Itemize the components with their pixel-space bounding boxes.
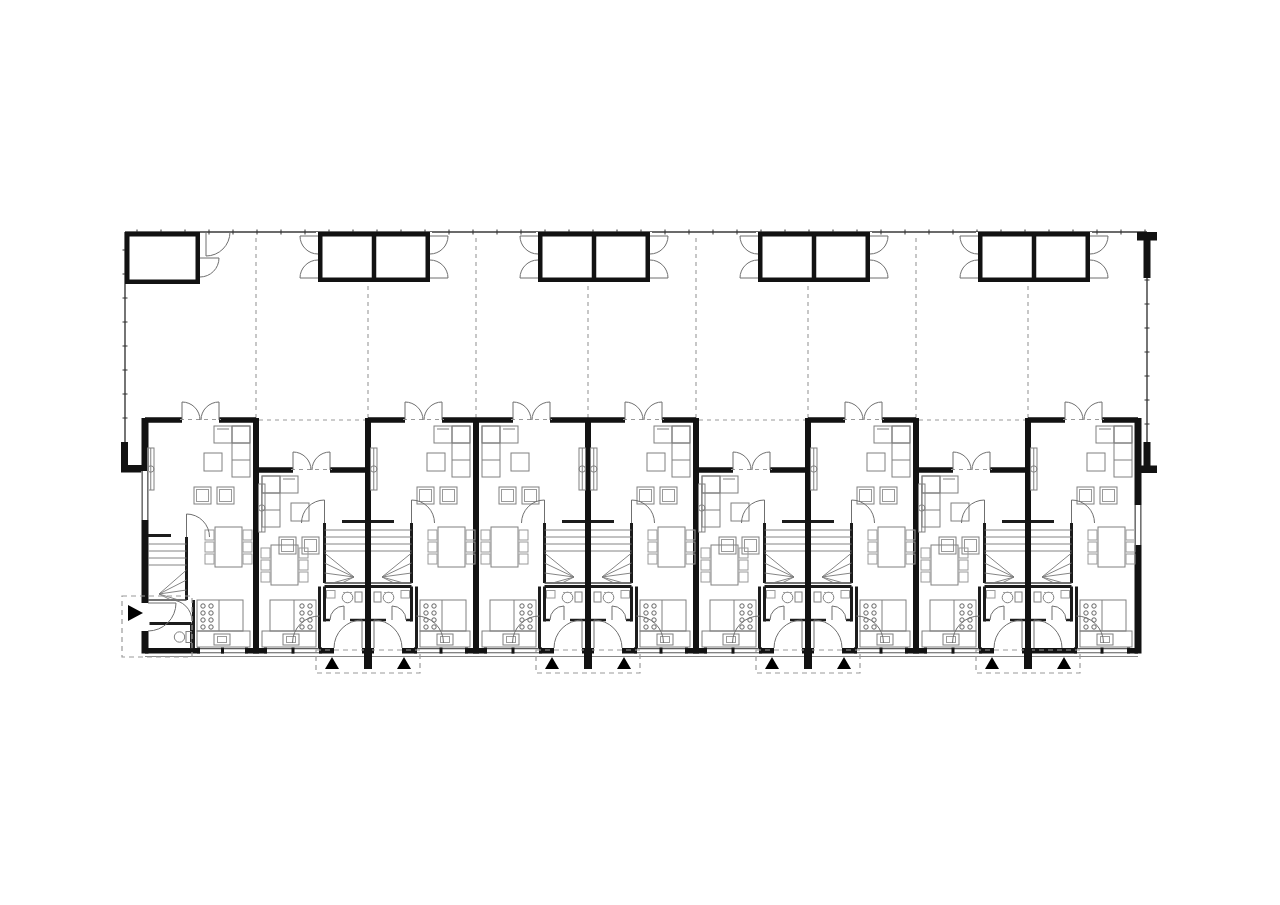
corner-sofa (262, 476, 298, 527)
wc-room (148, 624, 192, 650)
washbasin (547, 591, 556, 599)
garden-doors (953, 452, 990, 470)
garden-wall (588, 417, 696, 423)
stairs (325, 530, 366, 583)
coffee-table (427, 453, 445, 471)
house-4 (476, 402, 588, 655)
stairs (545, 530, 586, 583)
floor-plan-canvas (0, 0, 1280, 905)
coffee-table (867, 453, 885, 471)
dining-set (205, 527, 252, 567)
bath-door (330, 606, 344, 620)
kitchen (1080, 600, 1132, 647)
front-door (374, 620, 402, 648)
entrance-marker-triangle (545, 657, 559, 669)
stairs (591, 530, 632, 583)
garden-doors (182, 402, 219, 420)
dining-set (868, 527, 915, 567)
stairs (1031, 530, 1072, 583)
corner-sofa (434, 426, 470, 477)
street-window (197, 647, 248, 654)
house-2 (256, 420, 368, 655)
house-7 (808, 402, 916, 655)
radiator (811, 448, 818, 490)
garden-doors (513, 402, 550, 420)
bath-door (990, 606, 1004, 620)
radiator (1031, 448, 1038, 490)
side-entrance-porch (122, 596, 192, 657)
stairs (811, 530, 852, 583)
kitchen (702, 600, 756, 647)
entrance-marker-triangle (617, 657, 631, 669)
coffee-table (291, 503, 309, 521)
house-6 (696, 420, 808, 655)
garden-doors (405, 402, 442, 420)
house-3 (368, 402, 476, 655)
dining-set (1088, 527, 1135, 567)
bath-door (550, 606, 564, 620)
armchairs (417, 487, 457, 504)
garden-shed-pair (740, 232, 888, 282)
washbasin (327, 591, 336, 599)
street-window (1074, 647, 1130, 654)
floor-plan-page (0, 0, 1280, 905)
radiator (371, 448, 378, 490)
party-walls (142, 418, 1142, 654)
washbasin (987, 591, 996, 599)
coffee-table (1087, 453, 1105, 471)
toilet (814, 592, 834, 603)
garden-wall (916, 420, 1028, 473)
interior (481, 426, 586, 648)
front-door (994, 620, 1022, 648)
washbasin (841, 591, 850, 599)
coffee-table (204, 453, 222, 471)
kitchen (640, 600, 690, 647)
coffee-table (951, 503, 969, 521)
kitchen (482, 600, 536, 647)
house-8 (916, 420, 1028, 655)
street-window (634, 647, 688, 654)
bath-door (1052, 606, 1066, 620)
corner-sofa (482, 426, 518, 477)
corner-sofa (654, 426, 690, 477)
house-9 (1028, 402, 1138, 654)
stairs (765, 530, 806, 583)
interior (919, 476, 1026, 648)
garden-shed-pair (520, 232, 668, 282)
side-entrance-door (141, 603, 177, 631)
kitchen (197, 600, 250, 647)
entrance-marker-triangle (1057, 657, 1071, 669)
bath-door (612, 606, 626, 620)
garden-wall (368, 417, 476, 423)
garden-shed-pair (300, 232, 448, 282)
coffee-table (731, 503, 749, 521)
coffee-table (511, 453, 529, 471)
interior (699, 476, 806, 648)
bath-door (832, 606, 846, 620)
house-5 (588, 402, 696, 655)
toilet (1034, 592, 1054, 603)
street-window (484, 647, 542, 654)
armchairs (857, 487, 897, 504)
bath-door (392, 606, 406, 620)
stair-cluster (141, 514, 210, 649)
garden-shed-pair (960, 232, 1108, 282)
washbasin (1061, 591, 1070, 599)
toilet (782, 592, 802, 603)
kitchen (860, 600, 910, 647)
kitchen (262, 600, 316, 647)
washbasin (621, 591, 630, 599)
street-window (264, 647, 322, 654)
garden-sheds (125, 232, 1108, 284)
armchairs (194, 487, 234, 504)
interior (811, 426, 916, 648)
entrance-marker-triangle (765, 657, 779, 669)
dining-set (648, 527, 695, 567)
toilet (562, 592, 582, 603)
garden-doors (733, 452, 770, 470)
house-row (141, 402, 1142, 655)
kitchen (420, 600, 470, 647)
front-door (554, 620, 582, 648)
toilet (342, 592, 362, 603)
interior (1031, 426, 1136, 648)
entrance-porches (122, 596, 1080, 673)
corner-sofa (702, 476, 738, 527)
armchairs (1077, 487, 1117, 504)
toilet (374, 592, 394, 603)
dining-set (428, 527, 475, 567)
garden-doors (293, 452, 330, 470)
washbasin (401, 591, 410, 599)
interior (141, 426, 253, 649)
entrance-marker-triangle (397, 657, 411, 669)
house-1 (141, 402, 257, 654)
corner-sofa (1096, 426, 1132, 477)
entrance-marker-triangle (325, 657, 339, 669)
armchairs (499, 487, 539, 504)
corner-sofa (922, 476, 958, 527)
radiator (591, 448, 598, 490)
corner-sofa (874, 426, 910, 477)
toilet (594, 592, 614, 603)
front-door (814, 620, 842, 648)
garden-wall (256, 420, 368, 473)
front-door (1034, 620, 1062, 648)
entrance-marker-triangle (837, 657, 851, 669)
stairs (148, 544, 187, 600)
garden-doors (845, 402, 882, 420)
kitchen (922, 600, 976, 647)
interior (371, 426, 476, 648)
street-window (704, 647, 762, 654)
front-door (774, 620, 802, 648)
toilet (1002, 592, 1022, 603)
front-door (594, 620, 622, 648)
bath-door (770, 606, 784, 620)
dining-set (481, 527, 528, 567)
garden-shed-corner (125, 232, 230, 284)
garden-wall (808, 417, 916, 423)
street-window (414, 647, 468, 654)
street-window (854, 647, 908, 654)
garden-wall (696, 420, 808, 473)
front-door (334, 620, 362, 648)
garden-doors (625, 402, 662, 420)
armchairs (637, 487, 677, 504)
coffee-table (647, 453, 665, 471)
toilet (174, 632, 192, 643)
stairs (985, 530, 1026, 583)
corner-sofa (214, 426, 250, 477)
washbasin (767, 591, 776, 599)
radiator (579, 448, 586, 490)
stairs (371, 530, 412, 583)
street-window (924, 647, 982, 654)
interior (591, 426, 696, 648)
entrance-marker-triangle (985, 657, 999, 669)
garden-doors (1065, 402, 1102, 420)
interior (259, 476, 366, 648)
